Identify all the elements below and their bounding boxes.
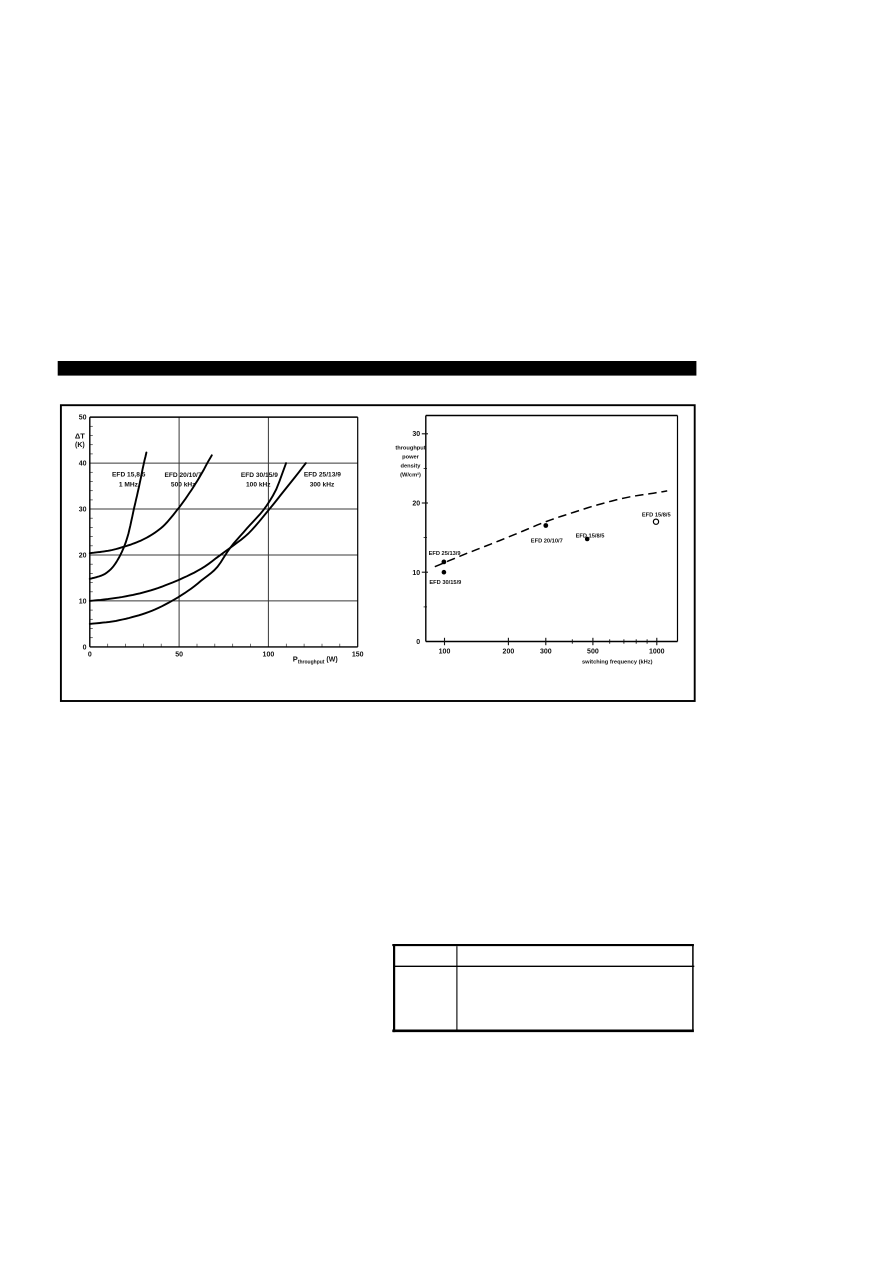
svg-text:500: 500 [587,648,599,655]
svg-text:10: 10 [412,570,420,577]
svg-text:20: 20 [412,501,420,508]
svg-text:EFD 15,8,5: EFD 15,8,5 [112,471,146,478]
svg-text:1000: 1000 [649,648,665,655]
svg-text:EFD 20/10/7: EFD 20/10/7 [164,472,201,479]
svg-text:300: 300 [540,648,552,655]
svg-text:Pthroughput (W): Pthroughput (W) [293,654,338,665]
svg-text:40: 40 [79,461,87,468]
svg-text:30: 30 [412,431,420,438]
svg-text:50: 50 [175,651,183,658]
svg-text:EFD 25/13/9: EFD 25/13/9 [429,551,461,557]
svg-text:EFD 15/8/5: EFD 15/8/5 [576,533,605,539]
svg-text:50: 50 [79,415,87,422]
svg-text:30: 30 [79,507,87,514]
svg-text:EFD 20/10/7: EFD 20/10/7 [531,539,563,545]
svg-text:500 kHz: 500 kHz [171,482,196,489]
svg-text:EFD 30/15/9: EFD 30/15/9 [241,472,278,479]
svg-text:20: 20 [79,553,87,560]
svg-text:density: density [401,464,422,470]
svg-text:300 kHz: 300 kHz [310,482,335,489]
svg-text:150: 150 [352,651,364,658]
svg-text:power: power [402,455,420,461]
svg-text:(K): (K) [75,442,85,449]
svg-text:10: 10 [79,598,87,605]
svg-text:100: 100 [263,651,275,658]
svg-text:(W/cm²): (W/cm²) [400,472,421,479]
svg-text:0: 0 [83,644,87,651]
svg-text:200: 200 [503,648,515,655]
svg-text:EFD 15/8/5: EFD 15/8/5 [642,512,671,518]
svg-text:100: 100 [439,648,451,655]
svg-text:EFD 25/13/9: EFD 25/13/9 [304,471,341,478]
svg-text:throughput: throughput [395,446,425,452]
svg-text:100 kHz: 100 kHz [246,482,271,489]
svg-text:switching frequency (kHz): switching frequency (kHz) [582,660,653,666]
svg-text:EFD 30/15/9: EFD 30/15/9 [429,580,461,586]
svg-text:0: 0 [416,639,420,646]
svg-text:1 MHz: 1 MHz [119,482,139,489]
svg-text:0: 0 [88,651,92,658]
svg-text:ΔT: ΔT [75,431,85,440]
